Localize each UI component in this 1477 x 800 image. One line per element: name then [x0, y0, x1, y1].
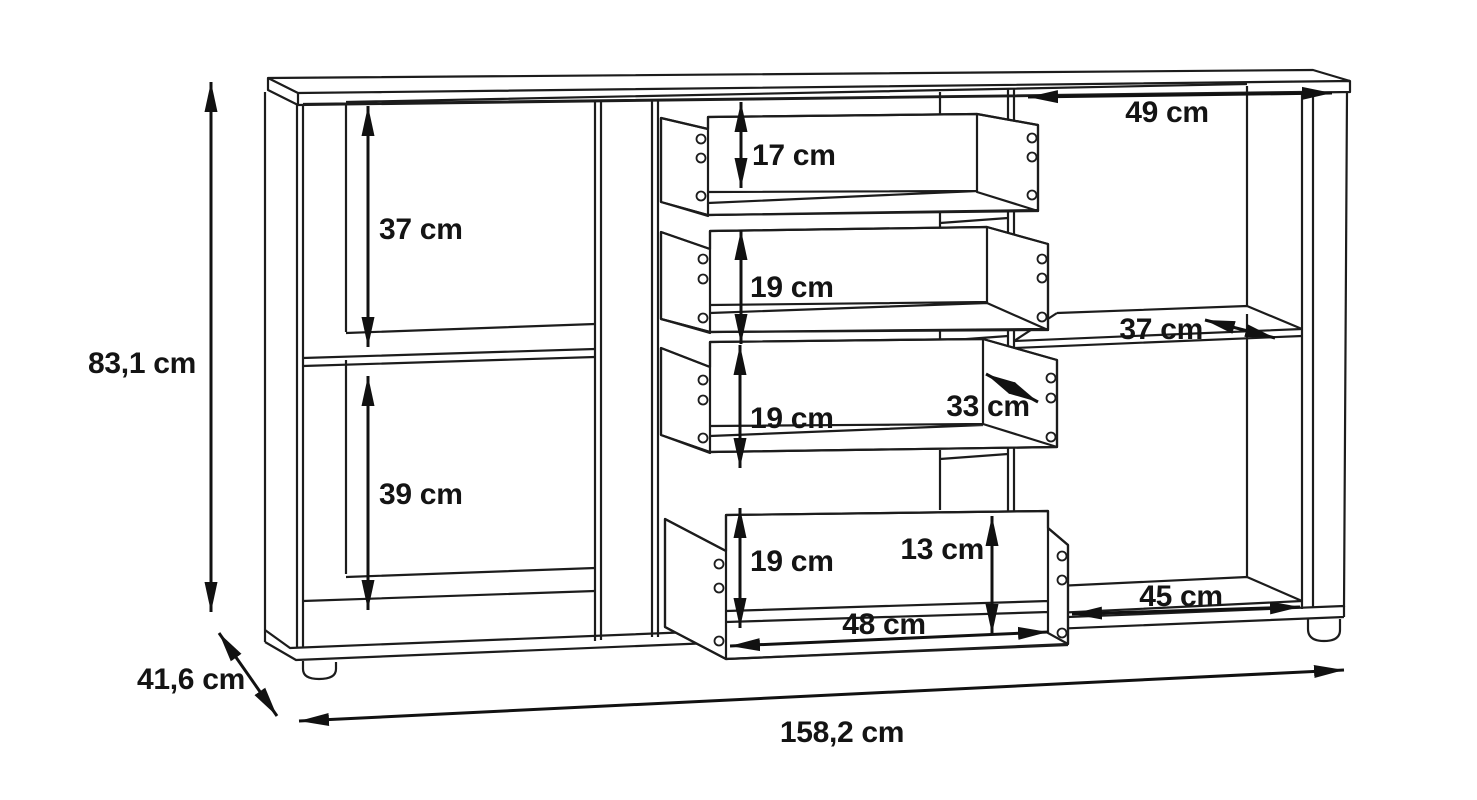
- label-overall-width: 158,2 cm: [780, 716, 904, 749]
- arrow-overall-width: [299, 670, 1344, 721]
- label-third-drawer: 19 cm: [750, 402, 834, 435]
- left-side-panel: [265, 92, 303, 648]
- label-drawer-depth: 33 cm: [946, 390, 1030, 423]
- label-overall-depth: 41,6 cm: [137, 663, 245, 696]
- label-second-drawer: 19 cm: [750, 271, 834, 304]
- label-left-upper-compartment: 37 cm: [379, 213, 463, 246]
- label-top-drawer: 17 cm: [752, 139, 836, 172]
- drawer-2: [661, 227, 1048, 333]
- arrow-right-shelf-depth: [1205, 320, 1275, 338]
- furniture-dimension-diagram: 83,1 cm 41,6 cm 158,2 cm 37 cm 39 cm 17 …: [0, 0, 1477, 800]
- label-overall-height: 83,1 cm: [88, 347, 196, 380]
- label-right-upper-width: 49 cm: [1125, 96, 1209, 129]
- drawer-2-body: [661, 227, 1048, 332]
- label-right-shelf-depth: 37 cm: [1119, 313, 1203, 346]
- label-left-lower-compartment: 39 cm: [379, 478, 463, 511]
- right-side-panel: [1302, 92, 1347, 609]
- right-foot: [1308, 618, 1340, 641]
- label-right-lower-width: 45 cm: [1139, 580, 1223, 613]
- label-drawer-side-height: 13 cm: [900, 533, 984, 566]
- label-bottom-drawer: 19 cm: [750, 545, 834, 578]
- label-drawer-width: 48 cm: [842, 608, 926, 641]
- drawer-1-body: [661, 114, 1038, 215]
- drawer-1: [661, 114, 1038, 216]
- left-divider: [595, 99, 658, 641]
- left-foot: [303, 661, 336, 679]
- diagram-canvas: 83,1 cm 41,6 cm 158,2 cm 37 cm 39 cm 17 …: [0, 0, 1477, 800]
